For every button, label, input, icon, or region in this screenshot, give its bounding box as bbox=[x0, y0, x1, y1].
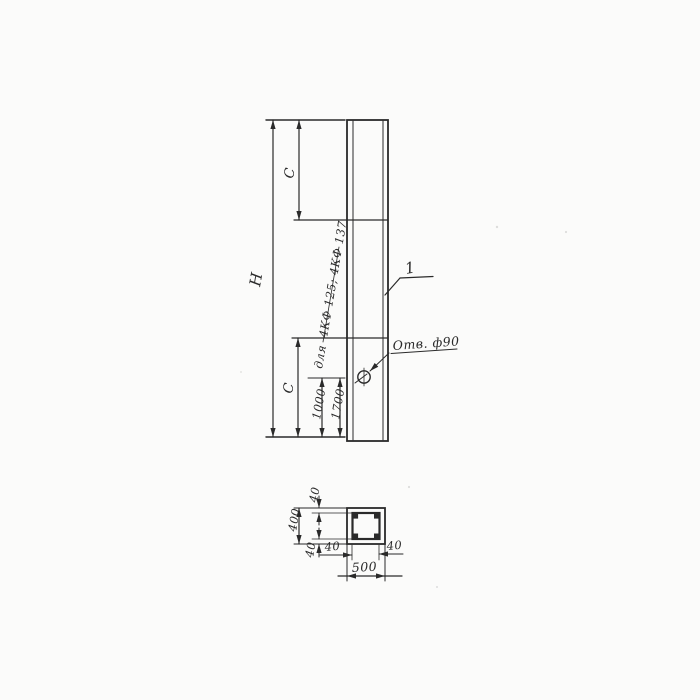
dimension-c-top: С bbox=[281, 120, 299, 220]
dimension-1700-label: 1700 bbox=[328, 387, 347, 420]
dimension-400-label: 400 bbox=[285, 507, 303, 534]
dimension-1700: 1700 bbox=[328, 378, 347, 437]
cover-top-label: 40 bbox=[306, 486, 323, 505]
technical-drawing-canvas: Н С С 1000 1700 для 4КФ 125; 4КФ 137 bbox=[0, 0, 700, 700]
rebar-dots bbox=[354, 514, 379, 538]
dimension-h: Н bbox=[246, 120, 273, 437]
dimension-c-top-label: С bbox=[281, 166, 299, 180]
part-callout: 1 bbox=[385, 258, 433, 295]
dimension-c-bottom: С bbox=[280, 338, 298, 437]
hole-leader-line bbox=[370, 353, 389, 371]
elevation-view: Н С С 1000 1700 для 4КФ 125; 4КФ 137 bbox=[246, 120, 460, 441]
dimension-1000: 1000 bbox=[309, 378, 328, 437]
dimension-1000-label: 1000 bbox=[309, 387, 328, 420]
dimension-cover-right: 40 bbox=[379, 538, 403, 554]
dimension-500-arrow-right bbox=[376, 573, 385, 578]
hole-label: Отв. ф90 bbox=[392, 333, 460, 353]
variant-note-for-word: для bbox=[311, 344, 329, 370]
dimension-c-bottom-label: С bbox=[280, 381, 298, 395]
part-callout-number: 1 bbox=[404, 258, 417, 278]
dimension-500: 500 bbox=[338, 559, 402, 579]
part-callout-shelf bbox=[400, 277, 433, 279]
variant-note-models: 4КФ 125; 4КФ 137 bbox=[316, 219, 350, 339]
dimension-500-label: 500 bbox=[351, 559, 377, 575]
variant-note: для 4КФ 125; 4КФ 137 bbox=[311, 219, 349, 369]
hole-detail: Отв. ф90 bbox=[355, 333, 460, 386]
section-view: 400 40 40 40 40 bbox=[285, 486, 403, 581]
cover-bottom-label: 40 bbox=[302, 541, 319, 560]
scan-specks bbox=[240, 226, 567, 588]
dimension-cover-top: 40 bbox=[306, 486, 352, 525]
column-outline bbox=[347, 120, 388, 441]
cover-right-label: 40 bbox=[385, 538, 403, 553]
rebar-dot bbox=[354, 534, 359, 539]
rebar-dot bbox=[354, 514, 359, 519]
dimension-h-label: Н bbox=[246, 271, 266, 289]
cover-left-label: 40 bbox=[323, 539, 341, 554]
rebar-dot bbox=[374, 534, 379, 539]
rebar-dot bbox=[374, 514, 379, 519]
